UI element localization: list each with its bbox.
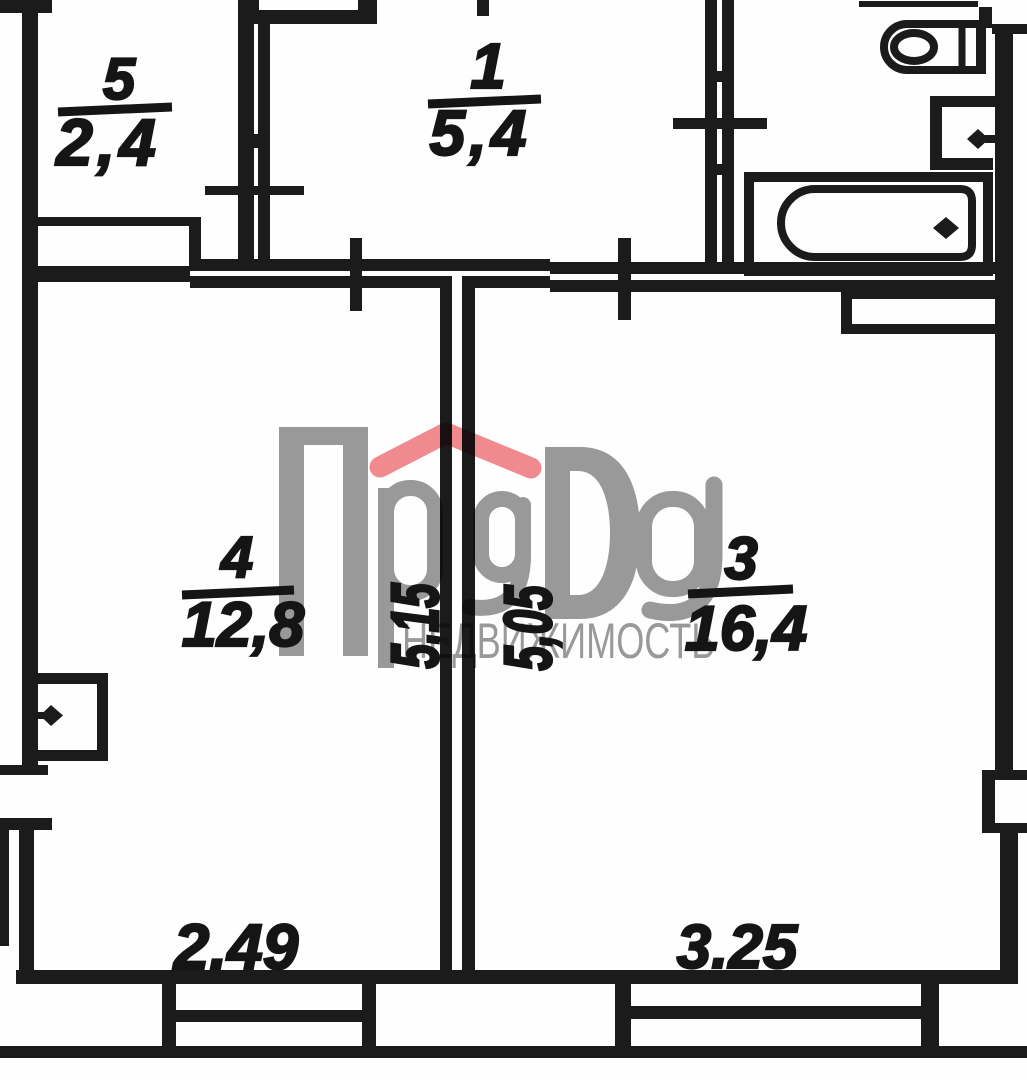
svg-text:3.25: 3.25: [677, 913, 799, 982]
svg-text:5,05: 5,05: [491, 584, 566, 670]
svg-text:4: 4: [220, 525, 253, 590]
svg-text:16,4: 16,4: [685, 594, 808, 664]
svg-text:5,15: 5,15: [378, 582, 453, 668]
svg-text:5,4: 5,4: [430, 97, 531, 169]
svg-text:2,4: 2,4: [54, 105, 160, 179]
svg-text:2.49: 2.49: [173, 911, 299, 983]
svg-text:1: 1: [470, 30, 506, 102]
svg-text:3: 3: [724, 525, 757, 592]
svg-text:12,8: 12,8: [182, 590, 305, 660]
svg-text:5: 5: [103, 47, 136, 112]
